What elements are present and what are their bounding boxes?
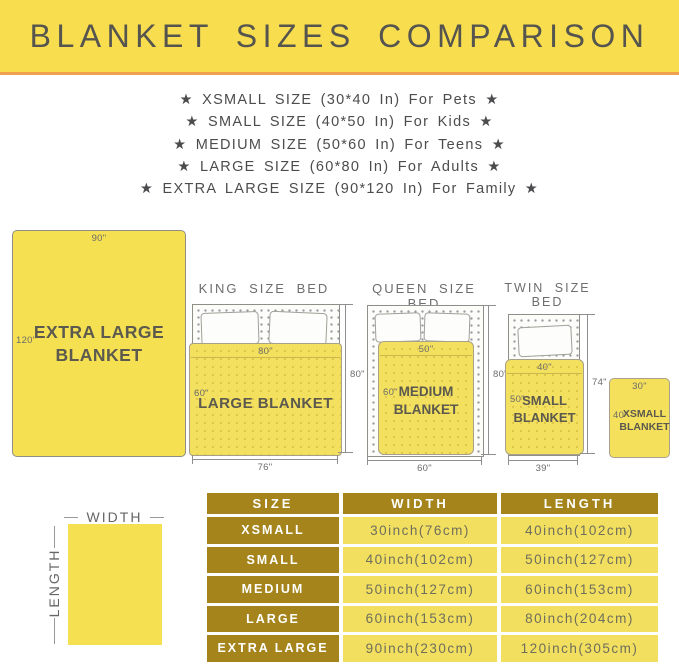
legend-blanket-swatch: [68, 524, 162, 645]
table-cell-length: 60inch(153cm): [501, 576, 658, 603]
table-cell-length: 120inch(305cm): [501, 635, 658, 662]
table-cell-width: 50inch(127cm): [343, 576, 497, 603]
blanket-sizes-infographic: BLANKET SIZES COMPARISON ★ XSMALL SIZE (…: [0, 0, 679, 667]
table-cell-width: 30inch(76cm): [343, 517, 497, 544]
size-list-item: ★ XSMALL SIZE (30*40 In) For Pets ★: [0, 89, 679, 111]
table-cell-size: SMALL: [207, 547, 339, 574]
bed-height-label: 80": [350, 369, 365, 380]
legend-length-label: LENGTH: [46, 543, 62, 623]
blanket-name: LARGE BLANKET: [190, 344, 341, 455]
table-cell-size: EXTRA LARGE: [207, 635, 339, 662]
bed-width-label: 60": [367, 463, 482, 474]
blanket-name-line: SMALL: [522, 393, 567, 410]
blanket-name-line: BLANKET: [55, 344, 142, 367]
bed-width-dim-line: [367, 460, 482, 461]
blanket-name: MEDIUM BLANKET: [379, 342, 473, 454]
blanket-name-line: MEDIUM: [399, 383, 454, 401]
table-cell-size: XSMALL: [207, 517, 339, 544]
size-list-item: ★ MEDIUM SIZE (50*60 In) For Teens ★: [0, 134, 679, 156]
bed-height-dim-line: [587, 314, 588, 454]
bed-height-label: 74": [592, 377, 607, 388]
table-cell-width: 40inch(102cm): [343, 547, 497, 574]
table-header-cell: WIDTH: [343, 493, 497, 514]
bed-width-label: 76": [192, 462, 338, 473]
table-cell-size: LARGE: [207, 606, 339, 633]
pillow-icon: [375, 312, 422, 343]
size-list-item: ★ EXTRA LARGE SIZE (90*120 In) For Famil…: [0, 178, 679, 200]
width-dim-line: [150, 517, 164, 518]
large-blanket-diagram: 80" 60" LARGE BLANKET: [189, 343, 342, 456]
blanket-name: XSMALL BLANKET: [615, 382, 674, 460]
bed-width-dim-line: [192, 459, 338, 460]
header-banner: BLANKET SIZES COMPARISON: [0, 0, 679, 75]
pillow-icon: [517, 325, 572, 358]
blanket-name-line: BLANKET: [619, 421, 669, 434]
bed-width-dim-line: [508, 460, 578, 461]
table-cell-length: 50inch(127cm): [501, 547, 658, 574]
size-list: ★ XSMALL SIZE (30*40 In) For Pets ★ ★ SM…: [0, 89, 679, 200]
king-bed-title: KING SIZE BED: [190, 281, 338, 296]
blanket-name: EXTRA LARGE BLANKET: [13, 231, 185, 456]
length-dim-line: [54, 618, 55, 644]
blanket-name-line: XSMALL: [623, 408, 666, 421]
size-list-item: ★ LARGE SIZE (60*80 In) For Adults ★: [0, 156, 679, 178]
table-cell-length: 80inch(204cm): [501, 606, 658, 633]
bed-height-dim-line: [345, 304, 346, 453]
table-header-cell: LENGTH: [501, 493, 658, 514]
width-dim-line: [64, 517, 78, 518]
pillow-icon: [424, 312, 471, 343]
blanket-name-line: LARGE BLANKET: [198, 394, 333, 414]
blanket-name-line: BLANKET: [513, 410, 575, 427]
extra-large-blanket-diagram: 90" 120" EXTRA LARGE BLANKET: [12, 230, 186, 457]
page-title: BLANKET SIZES COMPARISON: [30, 18, 650, 55]
blanket-name: SMALL BLANKET: [506, 360, 583, 454]
bed-height-dim-line: [488, 305, 489, 455]
legend-width-label: WIDTH: [79, 509, 150, 525]
xsmall-blanket-diagram: 30" 40" XSMALL BLANKET: [609, 378, 670, 458]
table-cell-length: 40inch(102cm): [501, 517, 658, 544]
size-table: SIZE WIDTH LENGTH XSMALL 30inch(76cm) 40…: [207, 493, 658, 662]
size-list-item: ★ SMALL SIZE (40*50 In) For Kids ★: [0, 111, 679, 133]
table-cell-width: 90inch(230cm): [343, 635, 497, 662]
table-cell-size: MEDIUM: [207, 576, 339, 603]
pillow-icon: [268, 311, 327, 346]
medium-blanket-diagram: 50" 60" MEDIUM BLANKET: [378, 341, 474, 455]
blanket-name-line: EXTRA LARGE: [34, 321, 164, 344]
table-cell-width: 60inch(153cm): [343, 606, 497, 633]
pillow-icon: [200, 311, 259, 346]
table-header-cell: SIZE: [207, 493, 339, 514]
twin-bed-title: TWIN SIZE BED: [500, 281, 595, 309]
blanket-name-line: BLANKET: [394, 401, 459, 419]
bed-width-label: 39": [508, 463, 578, 474]
small-blanket-diagram: 40" 50" SMALL BLANKET: [505, 359, 584, 455]
